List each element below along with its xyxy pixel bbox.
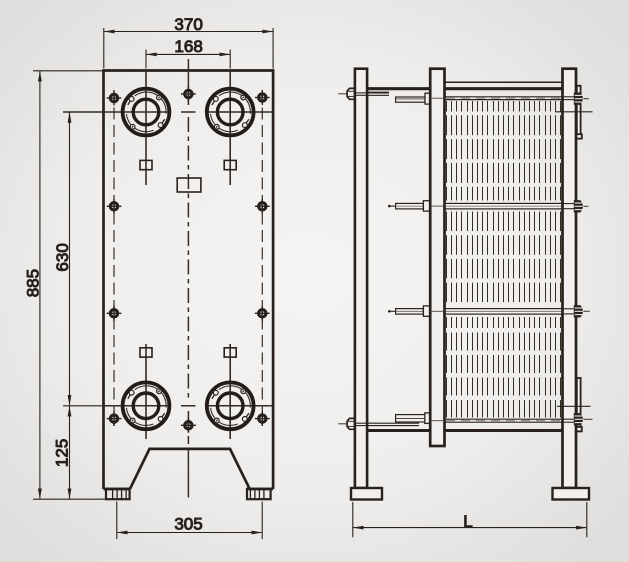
svg-text:125: 125 bbox=[52, 439, 71, 467]
svg-text:L: L bbox=[463, 512, 472, 531]
svg-text:305: 305 bbox=[174, 514, 202, 533]
svg-text:168: 168 bbox=[174, 37, 202, 56]
svg-text:630: 630 bbox=[53, 243, 72, 271]
svg-text:885: 885 bbox=[23, 269, 42, 297]
svg-text:370: 370 bbox=[174, 15, 202, 34]
